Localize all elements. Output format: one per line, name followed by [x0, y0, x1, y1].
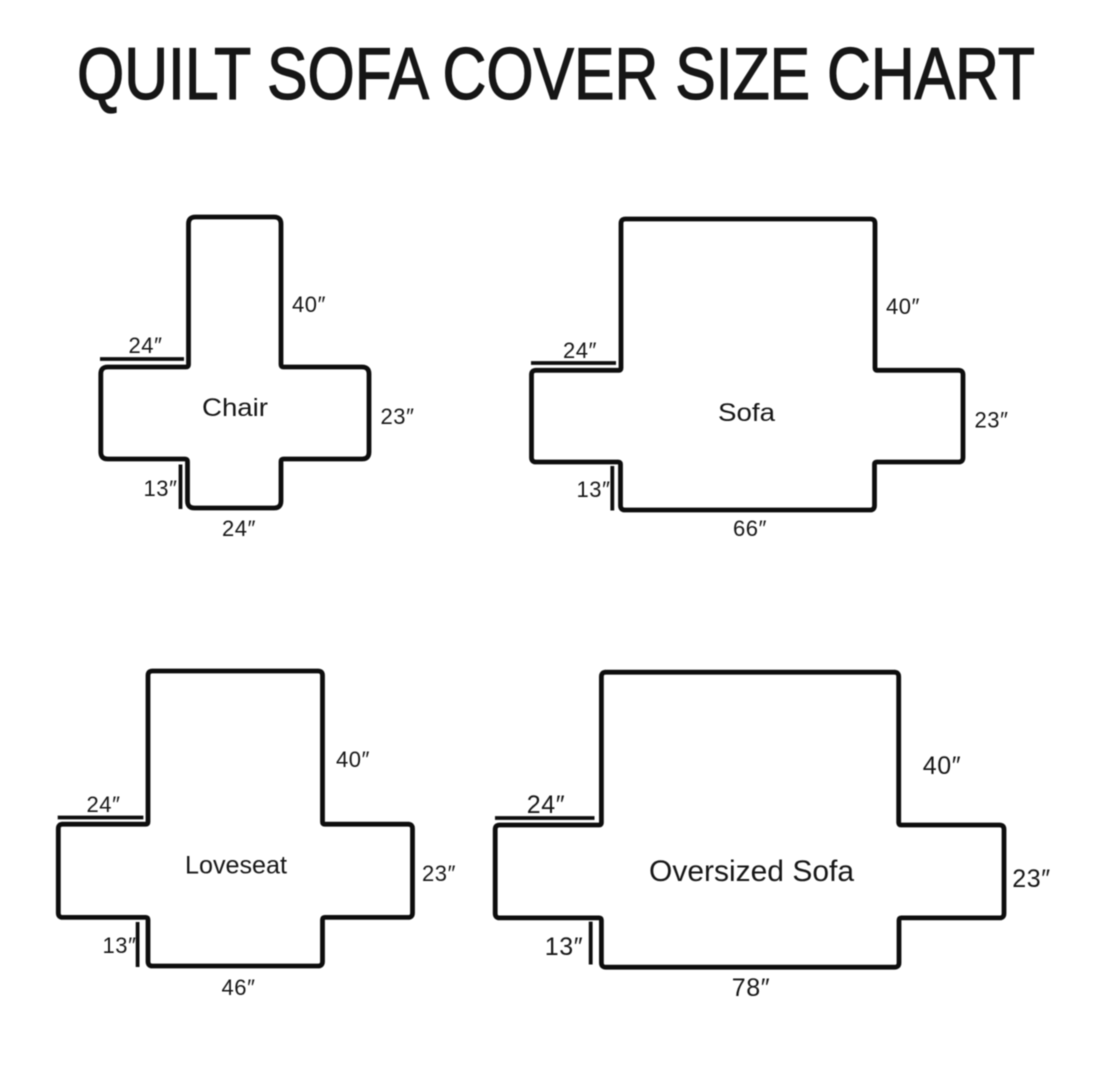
- svg-text:23″: 23″: [380, 404, 414, 429]
- svg-text:24″: 24″: [527, 791, 565, 819]
- svg-text:13″: 13″: [143, 476, 177, 501]
- svg-text:23″: 23″: [422, 861, 456, 886]
- svg-text:Oversized Sofa: Oversized Sofa: [649, 855, 854, 888]
- svg-text:23″: 23″: [1012, 865, 1050, 893]
- svg-text:40″: 40″: [886, 294, 920, 319]
- svg-text:13″: 13″: [102, 933, 136, 958]
- svg-text:66″: 66″: [733, 516, 767, 541]
- svg-text:23″: 23″: [974, 408, 1008, 433]
- svg-text:78″: 78″: [732, 974, 770, 1002]
- svg-text:24″: 24″: [128, 333, 162, 358]
- svg-text:24″: 24″: [563, 338, 597, 363]
- svg-text:13″: 13″: [576, 477, 610, 502]
- svg-text:Chair: Chair: [202, 394, 268, 422]
- svg-text:24″: 24″: [222, 516, 256, 541]
- svg-text:Sofa: Sofa: [718, 399, 775, 427]
- svg-text:40″: 40″: [336, 747, 370, 772]
- svg-text:13″: 13″: [545, 933, 583, 961]
- svg-text:Loveseat: Loveseat: [185, 852, 287, 880]
- svg-text:46″: 46″: [221, 975, 255, 1000]
- svg-text:40″: 40″: [292, 292, 326, 317]
- svg-text:40″: 40″: [923, 752, 961, 780]
- svg-text:QUILT SOFA COVER SIZE CHART: QUILT SOFA COVER SIZE CHART: [77, 34, 1035, 115]
- svg-text:24″: 24″: [86, 792, 120, 817]
